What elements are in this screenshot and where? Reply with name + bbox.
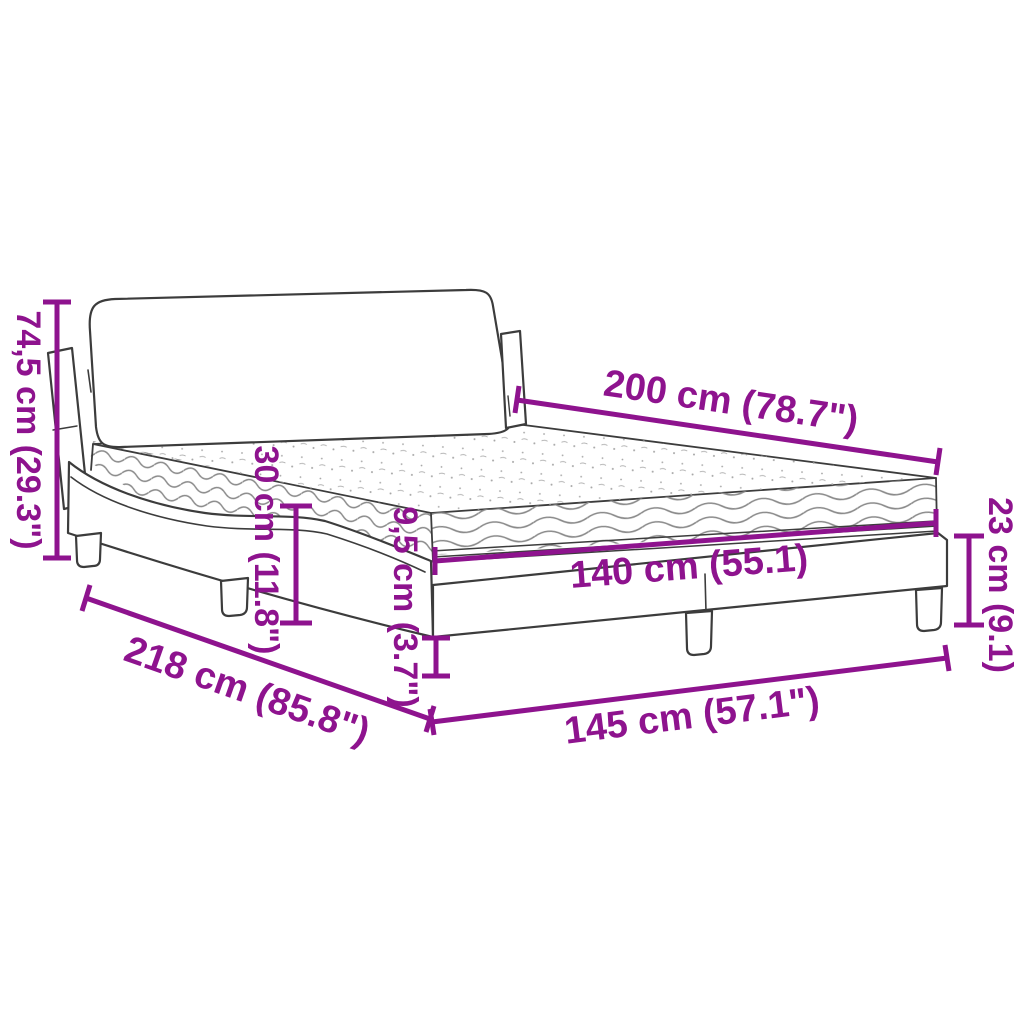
- front-corner-rail-height-label: 9,5 cm (3.7"): [386, 506, 424, 707]
- diagram-canvas: 74,5 cm (29.3") 200 cm (78.7") 30 cm (11…: [0, 0, 1024, 1024]
- headboard-cushion: [90, 290, 512, 447]
- bed-leg-front-left: [221, 578, 248, 616]
- total-length-label: 218 cm (85.8"): [119, 629, 375, 754]
- mattress-side-height-label: 30 cm (11.8"): [247, 446, 285, 655]
- frame-end-height-label: 23 cm (9.1): [981, 497, 1019, 673]
- bed-leg-back-left: [76, 533, 101, 567]
- bed-dimension-diagram: 74,5 cm (29.3") 200 cm (78.7") 30 cm (11…: [0, 0, 1024, 1024]
- headboard-height-label: 74,5 cm (29.3"): [9, 310, 47, 549]
- dim-line-front-corner-rail-height: [422, 638, 450, 676]
- mattress-left-face-outline: [91, 444, 93, 470]
- headboard-post-right: [501, 331, 526, 428]
- bed-leg-front-right: [916, 588, 942, 631]
- bed-line-art: [48, 290, 950, 655]
- headboard-cushion-fold-mark: [88, 370, 91, 392]
- bed-leg-front-middle: [686, 611, 712, 655]
- dim-line-frame-end-height: [954, 536, 984, 625]
